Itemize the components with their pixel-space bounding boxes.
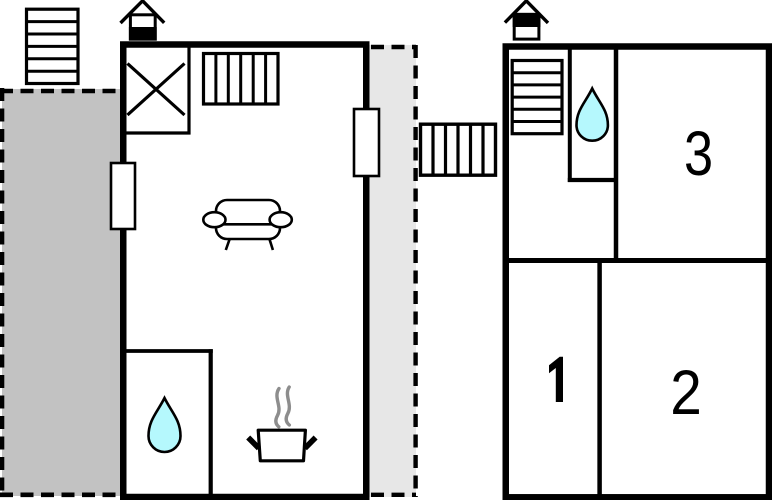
- svg-text:2: 2: [670, 357, 702, 427]
- svg-text:3: 3: [684, 120, 713, 190]
